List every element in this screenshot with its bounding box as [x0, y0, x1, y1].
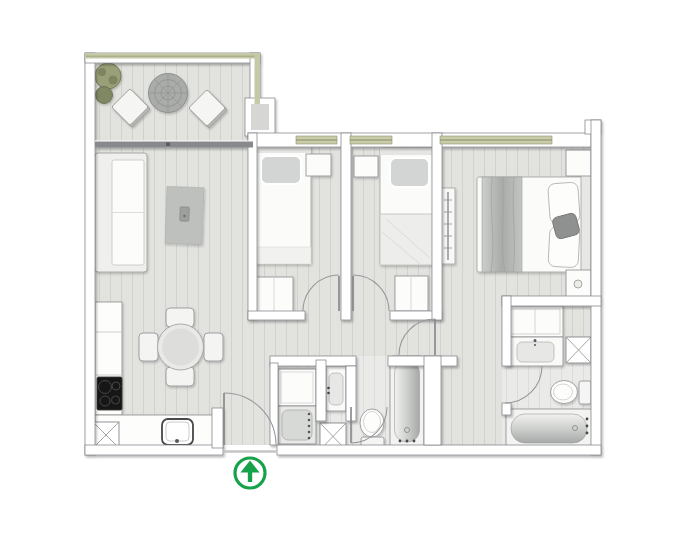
bed2-pillow: [390, 158, 429, 187]
bedroom2-dresser: [395, 276, 428, 311]
wall-bath-top-left: [270, 356, 356, 366]
tub-faucet-dots: [586, 418, 589, 421]
balcony-divider: [95, 141, 253, 148]
dining-chair-left: [139, 333, 158, 361]
main-tub-drain: [405, 428, 410, 433]
bed2-headboard: [380, 148, 434, 155]
ensuite-toilet-tank: [579, 381, 591, 404]
wall-counter-end: [212, 408, 223, 448]
ensuite-faucet: [534, 339, 537, 342]
main-tub-faucet: [399, 440, 402, 443]
master-blanket: [482, 177, 522, 272]
entrance-arrow-icon: [235, 458, 265, 488]
wall-bottom-right: [277, 445, 601, 455]
wall-exterior-right: [591, 120, 601, 455]
balcony-trim-top: [85, 53, 260, 59]
wall-laundry-left: [270, 363, 278, 445]
balcony-trim-right: [255, 53, 261, 104]
laundry-shelf: [278, 369, 316, 406]
wall-laundry-vanity: [316, 360, 326, 421]
main-bath-faucet: [327, 387, 330, 390]
rug-accessory: [180, 207, 189, 221]
sink-faucet: [175, 439, 179, 443]
bedroom2-nightstand: [354, 156, 378, 177]
wall-ensuite-top: [502, 296, 601, 306]
niche-interior: [251, 104, 269, 130]
bush-texture: [109, 76, 118, 85]
washer-drum: [282, 410, 312, 440]
bed1-pillow: [261, 156, 301, 184]
bed2-blanket: [380, 214, 434, 265]
divider-latch: [166, 143, 170, 147]
wall-bedroom2-master: [432, 133, 442, 320]
wall-exterior-left: [85, 53, 95, 455]
apartment-floor-plan: [0, 0, 680, 534]
bed1-fold: [255, 247, 311, 264]
wall-ensuite-left: [502, 296, 511, 366]
floor-plan-screenshot: [0, 0, 680, 534]
dining-chair-right: [204, 333, 223, 361]
master-headboard: [581, 174, 591, 275]
rug: [165, 186, 204, 244]
wall-ensuite-left-low: [502, 403, 511, 415]
master-nightstand-top: [566, 150, 591, 176]
wall-bath-top-right: [388, 356, 457, 366]
round-patio-table: [149, 74, 188, 113]
bedroom1-nightstand: [306, 154, 331, 176]
bush-large: [95, 63, 121, 89]
wall-bottom-left: [85, 445, 223, 455]
wall-bedroom1-bottom: [248, 311, 305, 320]
wall-bedroom-divider: [341, 133, 351, 320]
main-bath-basin: [329, 373, 343, 405]
wall-master-corridor: [424, 356, 441, 445]
bush-texture: [98, 68, 106, 76]
nightstand-lamp: [574, 280, 582, 288]
tub-drain: [573, 426, 578, 431]
wall-bedroom1-left: [248, 133, 257, 320]
shaft-kitchen: [93, 422, 119, 448]
bush-small: [96, 87, 113, 104]
shaft-ensuite: [566, 337, 591, 363]
